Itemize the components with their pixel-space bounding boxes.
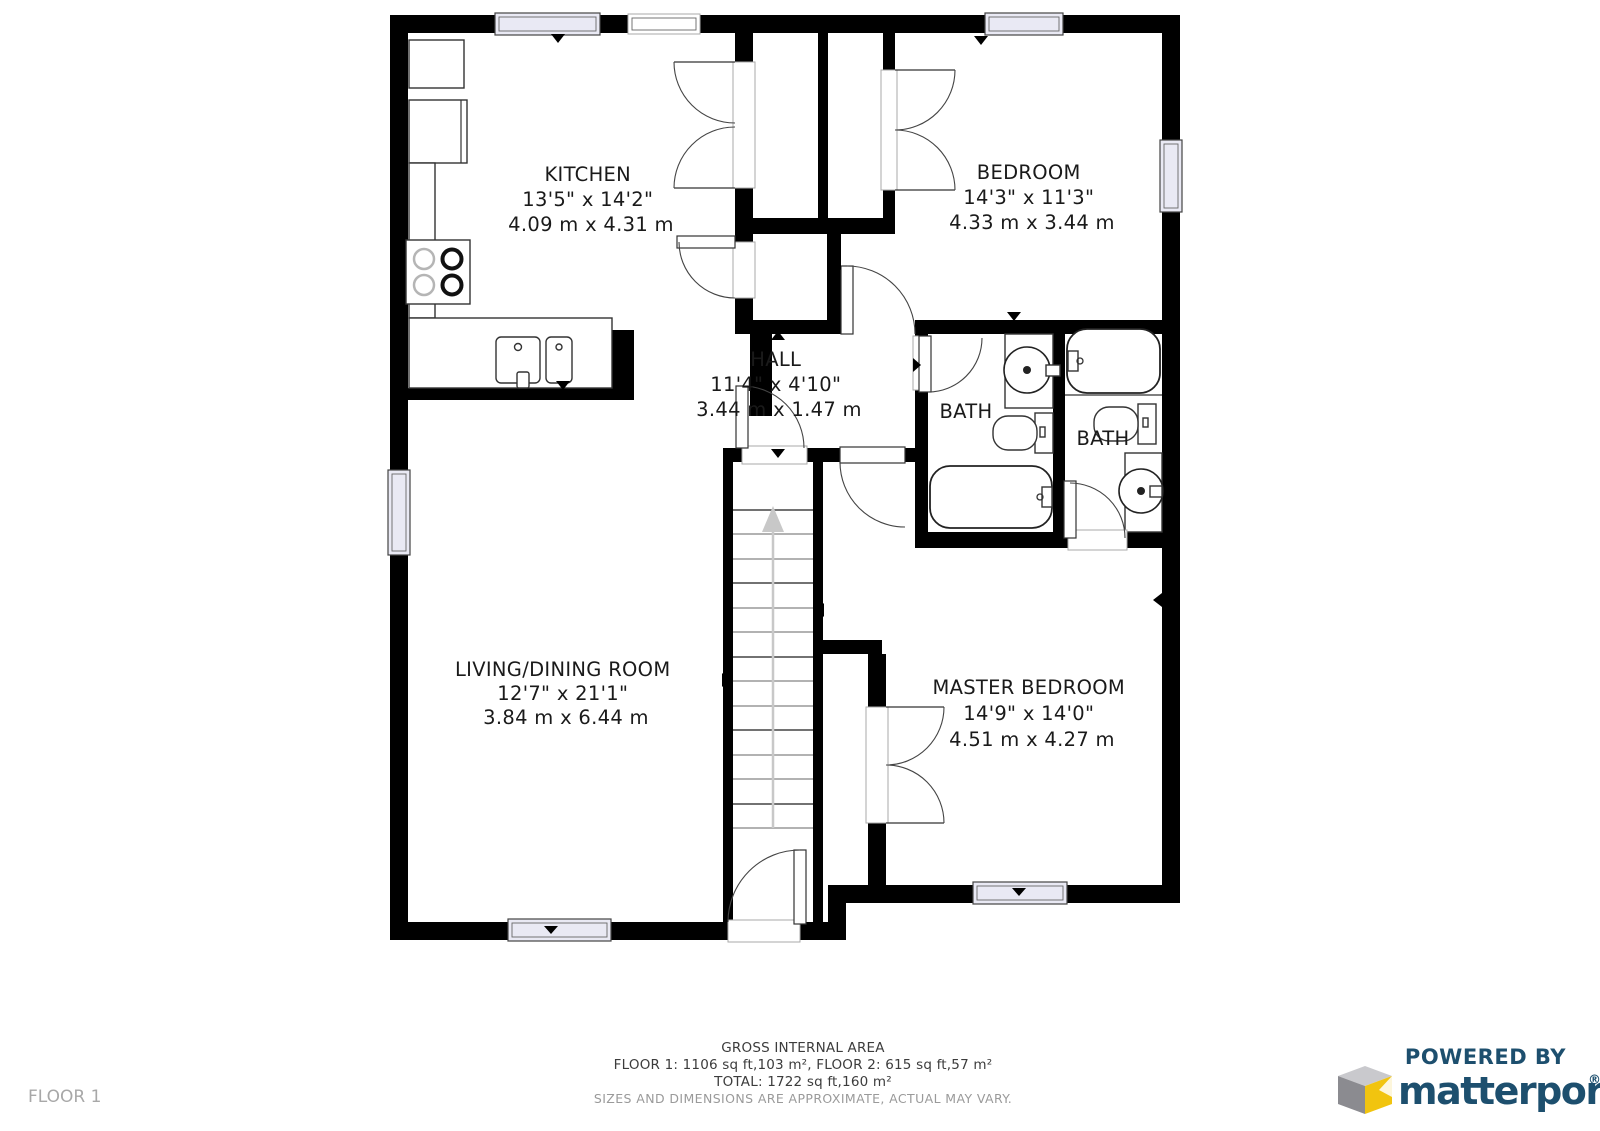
cabinet bbox=[409, 40, 464, 88]
wall-masterdoor-right bbox=[905, 448, 928, 462]
wall-pantry-left-top bbox=[735, 234, 753, 242]
room-name: LIVING/DINING ROOM bbox=[455, 658, 670, 681]
wall-master-left-top bbox=[868, 654, 886, 707]
door-swing-master bbox=[840, 447, 905, 527]
wall-closetA-top bbox=[735, 33, 753, 62]
wall-pantry-right bbox=[827, 234, 841, 334]
door-bifold-bedroom-closet bbox=[881, 70, 955, 190]
master-label: MASTER BEDROOM 14'9" x 14'0" 4.51 m x 4.… bbox=[932, 676, 1131, 751]
bath-right-label: BATH bbox=[1077, 427, 1130, 450]
wall-master-stub bbox=[823, 640, 882, 654]
matterport-wordmark: matterport bbox=[1398, 1069, 1600, 1113]
room-size-metric: 4.33 m x 3.44 m bbox=[949, 211, 1115, 234]
door-bifold-master-closet bbox=[866, 707, 944, 823]
wall-under-closets bbox=[735, 218, 895, 234]
refrigerator-icon bbox=[409, 100, 467, 163]
kitchen-label: KITCHEN 13'5" x 14'2" 4.09 m x 4.31 m bbox=[508, 163, 674, 236]
wall-master-left-bottom bbox=[868, 823, 886, 885]
room-size-metric: 4.09 m x 4.31 m bbox=[508, 213, 674, 236]
tick-icon bbox=[1153, 593, 1162, 607]
floorplan-canvas: KITCHEN 13'5" x 14'2" 4.09 m x 4.31 m BE… bbox=[0, 0, 1600, 1131]
registered-mark: ® bbox=[1588, 1073, 1600, 1088]
room-name: MASTER BEDROOM bbox=[932, 676, 1125, 699]
gross-area-title: GROSS INTERNAL AREA bbox=[721, 1040, 885, 1056]
room-name: HALL bbox=[750, 348, 801, 371]
wall-pantry-bottom bbox=[735, 320, 841, 334]
living-label: LIVING/DINING ROOM 12'7" x 21'1" 3.84 m … bbox=[455, 658, 677, 729]
bath-left-label: BATH bbox=[940, 400, 993, 423]
wall-stair-right bbox=[813, 448, 823, 928]
window-living-bottom bbox=[508, 919, 611, 941]
wall-kitchen-divider-cap bbox=[612, 330, 634, 400]
door-swing-pantry bbox=[677, 236, 755, 298]
window-bedroom-top bbox=[985, 13, 1063, 35]
room-size-imperial: 11'4" x 4'10" bbox=[710, 373, 841, 396]
counter-left bbox=[409, 163, 435, 241]
floor-label: FLOOR 1 bbox=[28, 1087, 101, 1107]
room-size-imperial: 13'5" x 14'2" bbox=[522, 188, 653, 211]
window-bedroom-right bbox=[1160, 140, 1182, 212]
disclaimer-text: SIZES AND DIMENSIONS ARE APPROXIMATE, AC… bbox=[594, 1091, 1012, 1106]
room-name: BEDROOM bbox=[977, 161, 1081, 184]
room-size-metric: 3.84 m x 6.44 m bbox=[483, 706, 649, 729]
wall-bath1-left-lower bbox=[915, 390, 928, 548]
bathtub-icon bbox=[1067, 329, 1160, 393]
matterport-logo-icon bbox=[1338, 1066, 1392, 1114]
tick-icon bbox=[1007, 312, 1021, 321]
window-kitchen-top-2 bbox=[628, 14, 700, 34]
wall-stair-top-left bbox=[723, 448, 742, 462]
kitchen-sink-icon bbox=[496, 337, 572, 388]
wall-stair-top-right bbox=[807, 448, 823, 462]
room-size-metric: 4.51 m x 4.27 m bbox=[949, 728, 1115, 751]
powered-by-text: POWERED BY bbox=[1405, 1045, 1566, 1069]
door-swing-entry bbox=[728, 850, 806, 942]
wall-bath-divider bbox=[1053, 334, 1065, 532]
window-kitchen-top bbox=[495, 13, 600, 35]
door-swing-bath-left bbox=[913, 336, 982, 392]
wall-bath-bottom-left bbox=[915, 532, 1070, 548]
room-size-metric: 3.44 m x 1.47 m bbox=[696, 398, 862, 421]
floors-area-line: FLOOR 1: 1106 sq ft,103 m², FLOOR 2: 615… bbox=[614, 1057, 993, 1073]
toilet-icon bbox=[993, 413, 1053, 453]
hall-label: HALL 11'4" x 4'10" 3.44 m x 1.47 m bbox=[696, 348, 862, 421]
tick-icon bbox=[551, 34, 565, 43]
wall-bath1-left-upper bbox=[915, 320, 928, 336]
wall-closetC-top bbox=[883, 33, 895, 70]
door-swing-bath-right bbox=[1064, 481, 1127, 550]
wall-closet-mid bbox=[818, 33, 828, 218]
room-size-imperial: 14'9" x 14'0" bbox=[963, 702, 1094, 725]
door-swing-bedroom bbox=[841, 266, 915, 334]
staircase bbox=[733, 506, 813, 828]
sink-icon bbox=[1119, 469, 1163, 513]
wall-masterdoor-left bbox=[823, 448, 840, 462]
floorplan-page: KITCHEN 13'5" x 14'2" 4.09 m x 4.31 m BE… bbox=[0, 0, 1600, 1131]
footer: GROSS INTERNAL AREA FLOOR 1: 1106 sq ft,… bbox=[28, 1040, 1012, 1107]
wall-bath-bottom-right bbox=[1125, 532, 1162, 548]
wall-closetC-bottom bbox=[883, 190, 895, 218]
room-name: KITCHEN bbox=[544, 163, 631, 186]
total-area-line: TOTAL: 1722 sq ft,160 m² bbox=[713, 1074, 892, 1090]
wall-kitchen-divider bbox=[408, 388, 618, 400]
room-size-imperial: 12'7" x 21'1" bbox=[497, 682, 628, 705]
bedroom-label: BEDROOM 14'3" x 11'3" 4.33 m x 3.44 m bbox=[949, 161, 1115, 234]
door-bifold-kitchen-closet bbox=[674, 62, 755, 188]
wall-stair-left bbox=[723, 448, 733, 928]
wall-closetA-bottom bbox=[735, 188, 753, 218]
branding: POWERED BY matterport ® bbox=[1338, 1045, 1600, 1114]
wall-step bbox=[828, 885, 846, 940]
tick-icon bbox=[974, 36, 988, 45]
stove-icon bbox=[406, 240, 470, 304]
bathtub-icon bbox=[930, 466, 1052, 528]
room-size-imperial: 14'3" x 11'3" bbox=[963, 186, 1094, 209]
window-living-left bbox=[388, 470, 410, 555]
